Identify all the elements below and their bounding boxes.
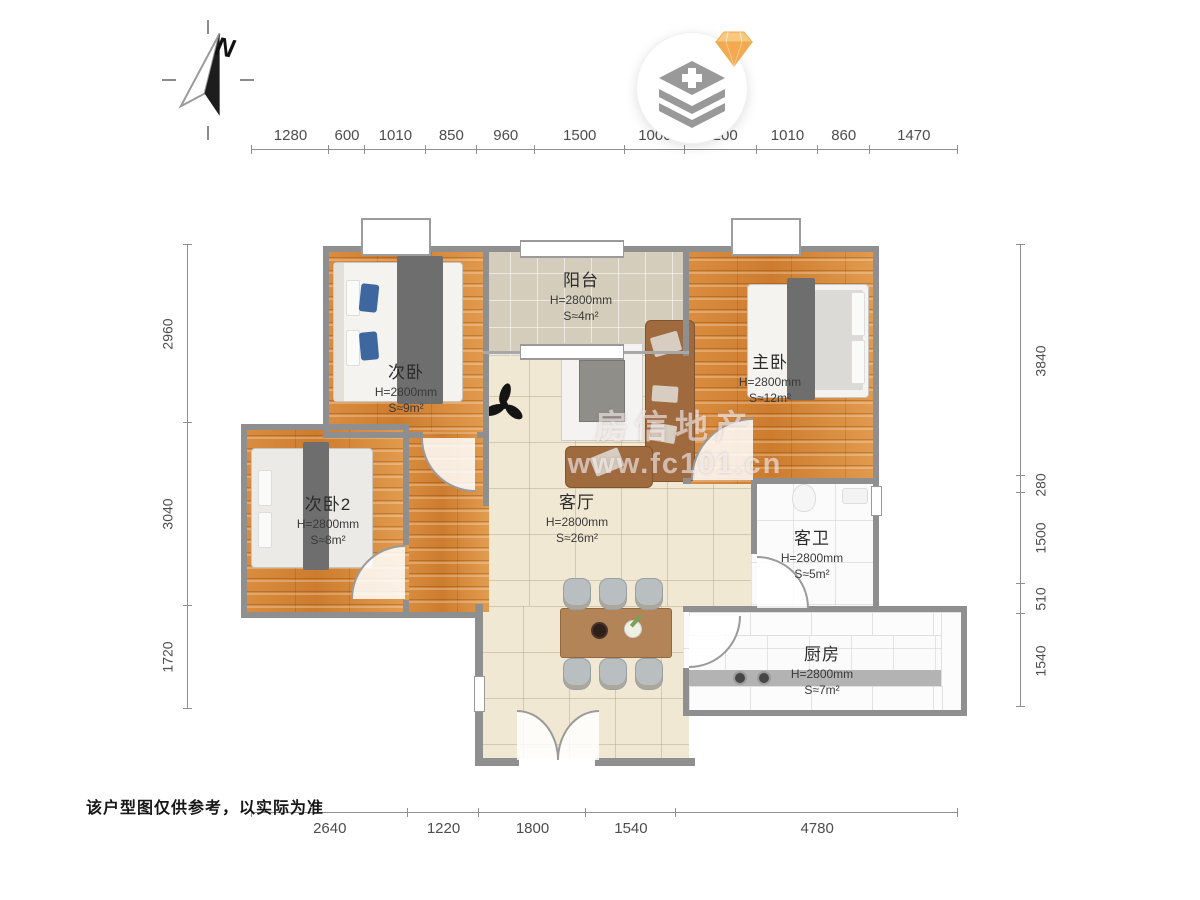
chair [635, 578, 663, 610]
tv [579, 360, 625, 422]
dim-value: 960 [493, 128, 518, 143]
wall [595, 758, 695, 766]
dim-value: 1470 [897, 128, 930, 143]
dim-value: 1540 [614, 821, 647, 836]
dim-value: 850 [439, 128, 464, 143]
dim-segment: 1800 [479, 806, 585, 836]
dim-value: 860 [831, 128, 856, 143]
wall [241, 424, 409, 430]
wall [323, 246, 329, 438]
bay-window-master [731, 218, 801, 256]
diamond-icon [714, 28, 754, 70]
dim-segment: 280 [1014, 476, 1054, 493]
bowl [591, 622, 608, 639]
dim-segment: 510 [1014, 584, 1054, 615]
compass-n-label: N [213, 31, 239, 65]
room-height: H=2800mm [700, 374, 840, 390]
bathroom-sink [842, 488, 868, 504]
wall [241, 612, 477, 618]
dim-segment: 1500 [1014, 493, 1054, 583]
dim-segment: 3840 [1014, 245, 1054, 476]
toilet [792, 484, 816, 512]
room-height: H=2800mm [742, 550, 882, 566]
pillow-blue [359, 331, 379, 360]
room-label-bedroom3: 次卧2 H=2800mm S≈8m² [258, 494, 398, 548]
room-area: S≈12m² [700, 390, 840, 406]
dim-segment: 1540 [1014, 614, 1054, 707]
room-label-bedroom2: 次卧 H=2800mm S≈9m² [336, 362, 476, 416]
wall [683, 606, 967, 612]
bathroom-window [871, 486, 882, 516]
wall [683, 246, 689, 356]
room-label-living: 客厅 H=2800mm S≈26m² [507, 492, 647, 546]
dim-value: 1720 [160, 642, 176, 673]
balcony-sliding-door [520, 344, 624, 360]
wall [241, 424, 247, 618]
dim-segment: 1280 [252, 128, 329, 156]
room-label-kitchen: 厨房 H=2800mm S≈7m² [752, 644, 892, 698]
wall [683, 478, 691, 484]
dimension-line-top: 1280600101085096015001000120010108601470 [252, 128, 958, 156]
wall [683, 710, 967, 716]
room-height: H=2800mm [752, 666, 892, 682]
room-area: S≈8m² [258, 532, 398, 548]
dim-segment: 1500 [535, 128, 625, 156]
bay-window-bedroom2 [361, 218, 431, 256]
dimension-line-right: 384028015005101540 [1014, 245, 1054, 707]
room-name: 次卧 [336, 362, 476, 384]
dim-segment: 1540 [586, 806, 677, 836]
ceiling-fan-icon [483, 381, 527, 429]
living-side-window [474, 676, 485, 712]
dim-value: 1500 [563, 128, 596, 143]
wall [961, 606, 967, 716]
dimension-line-bottom: 26401220180015404780 [252, 806, 958, 836]
pillow [346, 330, 360, 366]
room-label-bathroom: 客卫 H=2800mm S≈5m² [742, 528, 882, 582]
dim-value: 1220 [427, 821, 460, 836]
wall [683, 668, 689, 716]
chair [599, 658, 627, 690]
room-label-master: 主卧 H=2800mm S≈12m² [700, 352, 840, 406]
dim-segment: 960 [477, 128, 535, 156]
room-name: 次卧2 [258, 494, 398, 516]
chair [599, 578, 627, 610]
balcony-window [520, 240, 624, 258]
wall [475, 758, 519, 766]
room-area: S≈4m² [511, 308, 651, 324]
dim-segment: 1470 [870, 128, 958, 156]
chair [563, 658, 591, 690]
pillow [851, 292, 865, 336]
room-name: 主卧 [700, 352, 840, 374]
dim-value: 1010 [771, 128, 804, 143]
wall [403, 424, 409, 545]
dim-value: 4780 [800, 821, 833, 836]
dim-value: 2960 [160, 318, 176, 349]
room-area: S≈26m² [507, 530, 647, 546]
dim-value: 1500 [1033, 523, 1049, 554]
floorplan-page: { "compass": {"label": "N"}, "rooms": [ … [0, 0, 1200, 900]
room-name: 阳台 [511, 270, 651, 292]
dim-segment: 1010 [365, 128, 426, 156]
room-height: H=2800mm [258, 516, 398, 532]
dim-segment: 3040 [156, 423, 194, 606]
dim-value: 1010 [379, 128, 412, 143]
sofa-cushion [651, 385, 678, 403]
dim-value: 600 [334, 128, 359, 143]
room-area: S≈5m² [742, 566, 882, 582]
dim-segment: 4780 [676, 806, 958, 836]
dim-value: 1540 [1033, 645, 1049, 676]
pillow [851, 340, 865, 384]
dim-value: 510 [1033, 587, 1049, 610]
wall [751, 478, 879, 484]
dim-segment: 1010 [757, 128, 818, 156]
dim-segment: 1720 [156, 606, 194, 709]
room-area: S≈7m² [752, 682, 892, 698]
room-name: 客卫 [742, 528, 882, 550]
dim-segment: 1220 [408, 806, 480, 836]
chair [563, 578, 591, 610]
dim-value: 1280 [274, 128, 307, 143]
room-name: 客厅 [507, 492, 647, 514]
kitchen-side-counter [941, 612, 963, 712]
dining-table [560, 608, 672, 658]
pillow-blue [359, 283, 380, 313]
disclaimer-text: 该户型图仅供参考，以实际为准 [86, 794, 324, 818]
dimension-line-left: 296030401720 [156, 245, 194, 709]
dim-segment: 600 [329, 128, 365, 156]
dim-value: 3040 [160, 499, 176, 530]
compass-north-icon: N [158, 14, 258, 144]
dim-segment: 2960 [156, 245, 194, 423]
dim-value: 2640 [313, 821, 346, 836]
pillow [346, 280, 360, 316]
dim-value: 3840 [1033, 345, 1049, 376]
room-label-balcony: 阳台 H=2800mm S≈4m² [511, 270, 651, 324]
dim-segment: 860 [818, 128, 870, 156]
wall [403, 600, 409, 618]
dim-segment: 850 [426, 128, 477, 156]
wall [483, 246, 489, 506]
room-height: H=2800mm [336, 384, 476, 400]
room-height: H=2800mm [511, 292, 651, 308]
dim-value: 1800 [516, 821, 549, 836]
stove-burner [735, 673, 745, 683]
room-area: S≈9m² [336, 400, 476, 416]
chair [635, 658, 663, 690]
room-height: H=2800mm [507, 514, 647, 530]
room-name: 厨房 [752, 644, 892, 666]
